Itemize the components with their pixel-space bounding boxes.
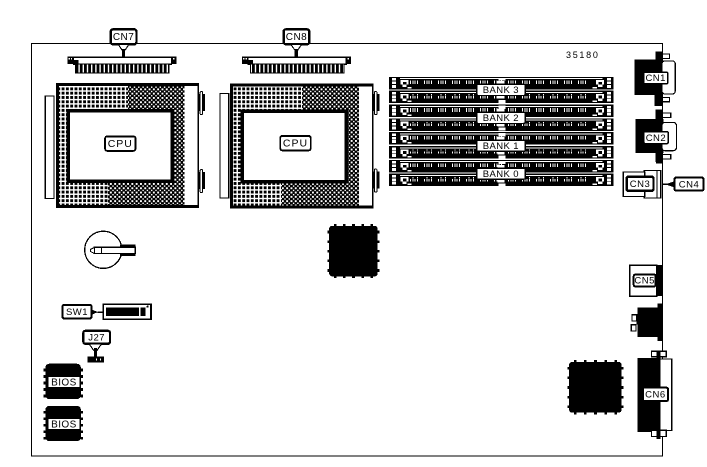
svg-text:CPU: CPU xyxy=(108,138,133,150)
svg-text:CN3: CN3 xyxy=(630,179,651,190)
svg-text:CN1: CN1 xyxy=(645,73,666,84)
svg-text:CN6: CN6 xyxy=(645,390,666,401)
svg-text:BANK 3: BANK 3 xyxy=(483,85,519,96)
svg-text:CN7: CN7 xyxy=(113,32,135,43)
svg-text:SW1: SW1 xyxy=(66,307,88,318)
svg-text:BANK 0: BANK 0 xyxy=(483,169,519,180)
svg-text:CN4: CN4 xyxy=(679,179,700,190)
svg-text:BANK 1: BANK 1 xyxy=(483,141,519,152)
svg-text:CN8: CN8 xyxy=(286,32,308,43)
svg-text:BANK 2: BANK 2 xyxy=(483,113,519,124)
svg-text:BIOS: BIOS xyxy=(51,378,77,389)
svg-text:35180: 35180 xyxy=(566,50,600,60)
svg-text:J27: J27 xyxy=(88,333,105,344)
svg-text:BIOS: BIOS xyxy=(51,420,77,431)
svg-text:CN5: CN5 xyxy=(634,276,655,287)
svg-text:CN2: CN2 xyxy=(646,133,667,144)
svg-text:CPU: CPU xyxy=(283,138,308,150)
